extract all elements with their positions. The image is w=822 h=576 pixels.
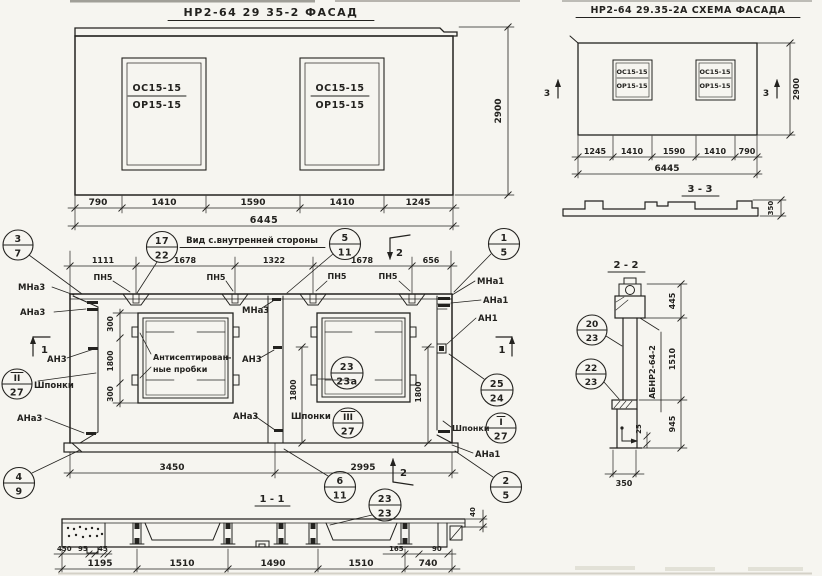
section-1-1: 1 - 1 [54,494,812,574]
dim-label: 2995 [350,463,375,473]
callout-top: 23 [340,362,354,373]
dim-label: 1510 [169,559,194,569]
schema-drawing: НР2-64 29.35-2А СХЕМА ФАСАДА ОС15-15 ОР1… [544,5,801,178]
schema-dim-row: 1245 1410 1590 1410 790 [572,147,762,160]
window-mark-top: ОС15-15 [316,83,365,94]
dim-label: 1590 [663,147,686,156]
cut-label: 3 [763,89,769,99]
schema-total-dim: 6445 [572,164,762,177]
rebar-dots [67,526,103,538]
section-3-3-title: 3 - 3 [687,184,712,195]
panel-drawing-svg: НР2-64 29 35-2 ФАСАД ОС15-15 ОР15-15 ОС1… [0,0,822,576]
dim-label: 1510 [668,347,677,370]
callout-bottom: 27 [494,432,508,443]
schema-title: НР2-64 29.35-2А СХЕМА ФАСАДА [590,5,785,16]
callout-top: I [499,418,502,428]
ana3-label: АНа3 [233,412,258,422]
keyway-channel [256,541,269,547]
callout-top: 4 [15,472,22,483]
mna3-label: МНа3 [18,283,45,293]
callout-top: 22 [585,364,598,374]
cut-label: 2 [396,248,403,259]
callout-top: 6 [336,476,343,487]
dim-label: 1410 [151,198,176,208]
callout-bottom: 5 [500,248,507,259]
dim-label: 1195 [87,559,112,569]
inner-view: Вид с.внутренней стороны [2,229,522,526]
facade-window-2: ОС15-15 ОР15-15 [300,58,384,170]
dim-label: 1111 [92,256,115,265]
ana3-label: АНа3 [20,308,45,318]
dim-label: 95 [78,545,88,553]
facade-top-ledge [75,28,457,36]
dim-label: 300 [106,316,115,332]
callout-bottom: 11 [333,491,347,502]
ref-label-group: АБНР2-64-2 [640,318,661,412]
section-3-3-profile [563,201,758,216]
facade-title: НР2-64 29 35-2 ФАСАД [184,6,359,19]
callout-17-22: 17 22 [137,232,178,294]
dim-label: 1245 [405,198,430,208]
section-cut-3-right: 3 [763,79,780,99]
scan-smudge [665,567,715,571]
window-mark-top: ОС15-15 [133,83,182,94]
inner-view-title: Вид с.внутренней стороны [186,236,318,246]
pn5-label: ПН5 [207,273,226,282]
view-left-labels: МНа3 АНа3 1 АН3 II 27 Шпонки АНа3 [2,283,96,433]
pn5-label: ПН5 [328,272,347,281]
dim-label: 1800 [106,351,115,372]
dim-label: 1510 [348,559,373,569]
callout-top: II [14,374,21,384]
antiseptic-note-line2: ные пробки [153,364,207,374]
window-mark-bottom: ОР15-15 [616,82,648,90]
infill-slab-2 [326,523,397,540]
dim-label: 740 [419,559,438,569]
callout-top: 2 [502,476,509,487]
dim-label: 656 [423,256,440,265]
dim-label: 40 [469,507,477,517]
scan-smudge [748,567,803,571]
shponki-label: Шпонки [452,424,489,433]
dim-label: 1322 [263,256,285,265]
scan-artifacts-top [70,0,812,3]
ana3-label: АНа3 [17,414,42,424]
callout-bottom: 23 [378,509,392,520]
drawing-sheet: НР2-64 29 35-2 ФАСАД ОС15-15 ОР15-15 ОС1… [0,0,822,576]
callout-bottom: 27 [341,427,355,438]
facade-window-1: ОС15-15 ОР15-15 [122,58,206,170]
section-3-3: 3 - 3 350 [563,184,786,219]
callout-6-11: 6 11 [284,449,356,503]
section-3-3-dim-label: 350 [767,201,775,216]
section-cut-3-left: 3 [544,79,561,99]
total-dim-label: 6445 [250,215,278,226]
callout-top: 20 [586,320,599,330]
callout-top: 17 [155,236,169,247]
view-right-labels: МНа1 АНа1 АН1 1 25 24 Шпонки I 27 АНа1 [443,277,516,460]
dim-label: 300 [106,386,115,402]
window-mark-bottom: ОР15-15 [699,82,731,90]
schema-height-label: 2900 [792,77,801,100]
dim-label: 445 [668,292,677,309]
section-2-2-profile [610,278,645,448]
facade-height-dim [455,24,514,198]
callout-top: 3 [14,234,21,245]
dim-label: 165 [389,545,404,553]
facade-total-dim: 6445 [68,215,459,229]
ribs [130,523,412,544]
callout-III-27: III 27 [333,408,363,438]
section-1-1-title: 1 - 1 [259,494,284,505]
view-bottom-dims: 3450 2995 [64,443,458,478]
small-dims-left: 450 95 45 [54,545,112,557]
dim-label: 90 [432,545,442,553]
schema-window-2: ОС15-15 ОР15-15 [696,60,735,100]
callout-bottom: 23 [586,334,599,344]
callout-top: 5 [341,233,348,244]
callout-top: 23 [378,494,392,505]
callout-bottom: 24 [490,394,504,405]
dim-label: 350 [616,479,633,488]
window-mark-top: ОС15-15 [616,68,648,76]
callout-25-24: 25 24 [449,354,513,406]
callout-II-27: II 27 [2,369,32,399]
dim-label: 1490 [260,559,285,569]
dim-label: 3450 [159,463,184,473]
facade-dim-row: 790 1410 1590 1410 1245 [68,198,459,211]
section-cut-2-top: 2 [387,235,410,260]
total-dim-label: 6445 [654,164,679,174]
callout-I-27: I 27 [486,413,516,443]
callout-top: 25 [490,379,504,390]
facade-height-label: 2900 [494,98,504,123]
window-mark-bottom: ОР15-15 [133,100,182,111]
dim-label: 1410 [329,198,354,208]
ana1-label: АНа1 [475,450,500,460]
view-middle-labels: МНа3 АН3 АНа3 Антисептирован- ные пробки… [140,301,363,438]
section-cut-1-right: 1 [496,336,515,356]
inner-window-2 [311,313,416,402]
section-1-1-profile [62,519,465,553]
dim-label: 945 [668,415,677,432]
shponki-label: Шпонки [34,381,74,391]
callout-top: III [343,413,353,423]
pn5-labels: ПН5 ПН5 ПН5 ПН5 [94,272,410,292]
cut-label: 1 [499,345,506,356]
pn5-label: ПН5 [94,273,113,282]
dim-label: 1590 [240,198,265,208]
callout-bottom: 23 [585,378,598,388]
infill-slab-1 [145,523,220,540]
facade-panel-outline [75,36,453,195]
dim-label: 1678 [351,256,374,265]
ref-label: АБНР2-64-2 [648,345,657,399]
callout-bottom: 22 [155,251,169,262]
callout-20-23: 20 23 [577,315,622,346]
callout-bottom: 5 [502,491,509,502]
section-2-2-title: 2 - 2 [613,260,638,271]
section-cut-2-bottom: 2 [390,458,413,485]
mna1-label: МНа1 [477,277,504,287]
section-2-2-dims: 445 1510 945 25 350 [605,281,687,488]
dim-label: 25 [635,424,643,434]
dim-label: 1800 [289,380,298,401]
dim-label: 790 [89,198,108,208]
cut-label: 3 [544,89,550,99]
callout-bottom: 7 [14,249,21,260]
callout-22-23: 22 23 [576,359,619,399]
view-inner-dims: 300 1800 300 1800 1800 [106,309,434,446]
mna3-label: МНа3 [242,306,269,316]
facade-drawing: НР2-64 29 35-2 ФАСАД ОС15-15 ОР15-15 ОС1… [68,6,514,230]
window-mark-top: ОС15-15 [699,68,731,76]
dim-label: 1410 [704,147,727,156]
dim-40: 40 [463,507,487,532]
callout-bottom: 9 [15,487,22,498]
ana1-label: АНа1 [483,296,508,306]
callout-top: 1 [500,233,507,244]
cut-label: 2 [400,468,407,479]
pn5-label: ПН5 [379,272,398,281]
antiseptic-note-line1: Антисептирован- [153,353,231,362]
dim-label: 1410 [621,147,644,156]
an3-label: АН3 [47,355,67,365]
callout-bottom: 23а [336,377,357,388]
section-2-2: 2 - 2 20 23 22 23 АБНР2-64-2 [576,260,687,488]
dim-label: 1800 [414,382,423,403]
shponki-label: Шпонки [291,412,331,422]
an3-label: АН3 [242,355,262,365]
window-mark-bottom: ОР15-15 [316,100,365,111]
section-cut-1-left: 1 [30,336,50,356]
dim-label: 1678 [174,256,197,265]
schema-edge-sliver [570,36,578,43]
schema-window-1: ОС15-15 ОР15-15 [613,60,652,100]
dim-label: 1245 [584,147,607,156]
dim-label: 790 [739,147,756,156]
an1-label: АН1 [478,314,498,324]
scan-smudge [575,566,635,570]
callout-bottom: 27 [10,388,24,399]
